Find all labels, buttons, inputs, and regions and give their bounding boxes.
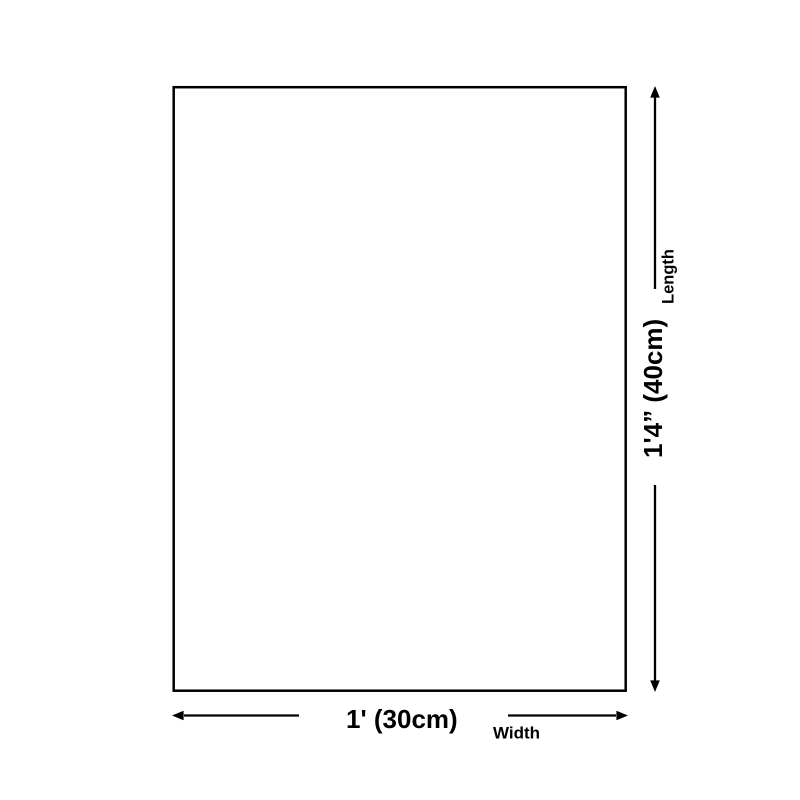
svg-text:1'4” (40cm): 1'4” (40cm)	[638, 319, 668, 458]
svg-text:Length: Length	[660, 249, 678, 304]
svg-text:1' (30cm): 1' (30cm)	[346, 704, 458, 734]
svg-text:Width: Width	[493, 724, 540, 743]
